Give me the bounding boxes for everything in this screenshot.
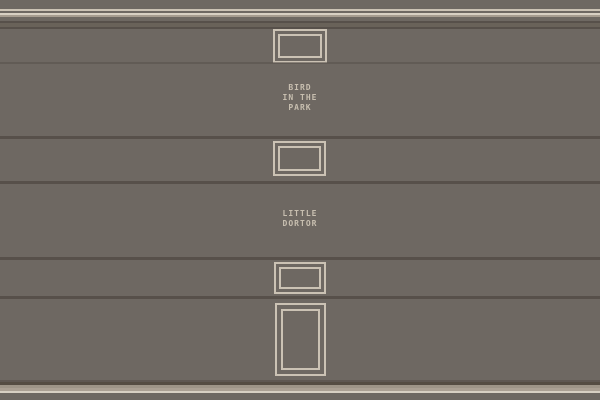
lower-window[interactable]: [274, 262, 326, 294]
cornice-line-upper: [0, 9, 600, 11]
middle-window[interactable]: [273, 141, 326, 176]
building-facade: BIRD IN THE PARK LITTLE DORTOR: [0, 0, 600, 400]
groove-line-5: [0, 181, 600, 184]
attic-window[interactable]: [273, 29, 327, 63]
sign-line: PARK: [200, 103, 400, 113]
sign-line: BIRD: [200, 83, 400, 93]
sign-bird-in-the-park: BIRD IN THE PARK: [200, 83, 400, 113]
groove-line-4: [0, 136, 600, 139]
door[interactable]: [275, 303, 326, 376]
groove-line-6: [0, 257, 600, 260]
sign-line: IN THE: [200, 93, 400, 103]
groove-line-7: [0, 296, 600, 299]
sign-little-dortor: LITTLE DORTOR: [200, 209, 400, 229]
sign-line: LITTLE: [200, 209, 400, 219]
sign-line: DORTOR: [200, 219, 400, 229]
groove-line-3: [0, 62, 600, 64]
base-highlight-line: [0, 391, 600, 393]
cornice-line-shadow: [0, 15, 600, 17]
